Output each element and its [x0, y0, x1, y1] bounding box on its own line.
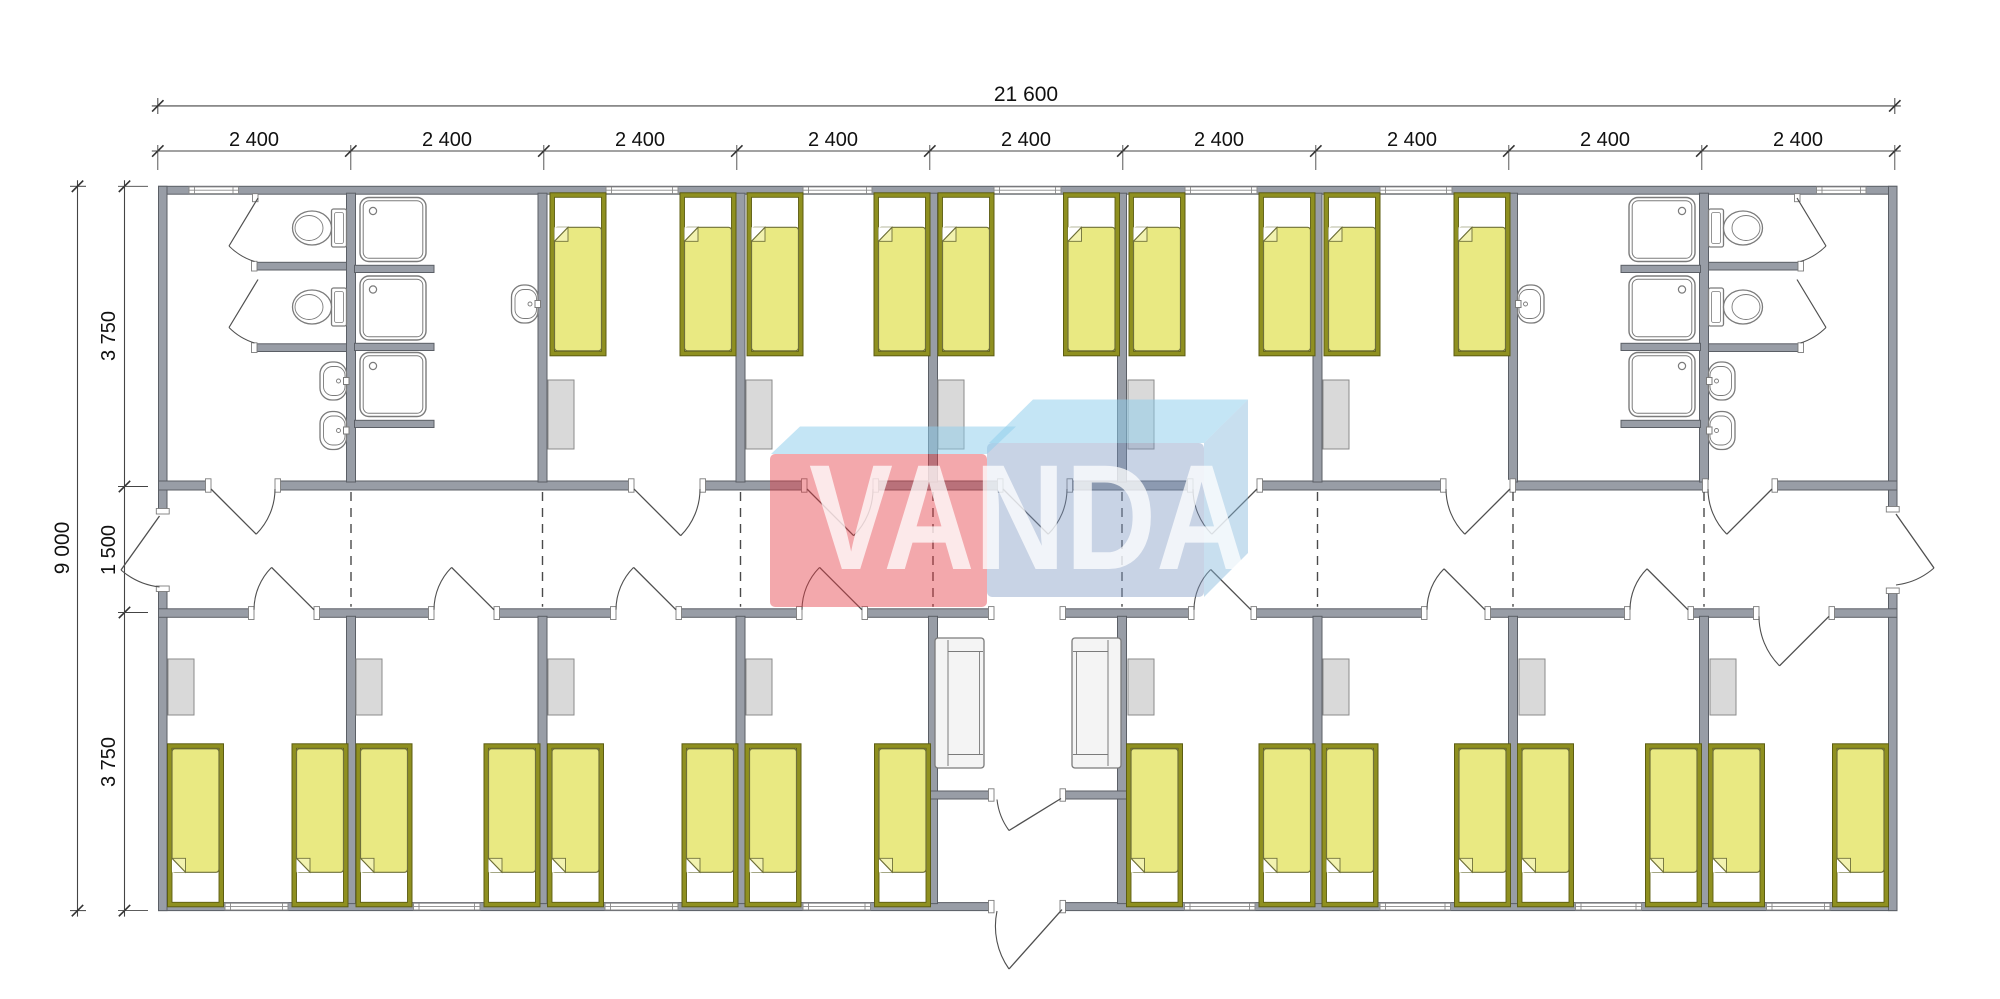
svg-text:2 400: 2 400: [615, 129, 665, 151]
svg-text:3 750: 3 750: [98, 737, 120, 787]
svg-text:2 400: 2 400: [1387, 129, 1437, 151]
svg-text:9 000: 9 000: [51, 522, 74, 575]
svg-text:3 750: 3 750: [98, 311, 120, 361]
svg-text:2 400: 2 400: [808, 129, 858, 151]
svg-text:VANDA: VANDA: [809, 433, 1247, 601]
svg-text:2 400: 2 400: [1194, 129, 1244, 151]
svg-text:2 400: 2 400: [1773, 129, 1823, 151]
svg-text:2 400: 2 400: [422, 129, 472, 151]
svg-text:2 400: 2 400: [1001, 129, 1051, 151]
svg-text:2 400: 2 400: [229, 129, 279, 151]
svg-text:1 500: 1 500: [98, 525, 120, 575]
svg-text:21 600: 21 600: [994, 83, 1058, 106]
svg-text:2 400: 2 400: [1580, 129, 1630, 151]
